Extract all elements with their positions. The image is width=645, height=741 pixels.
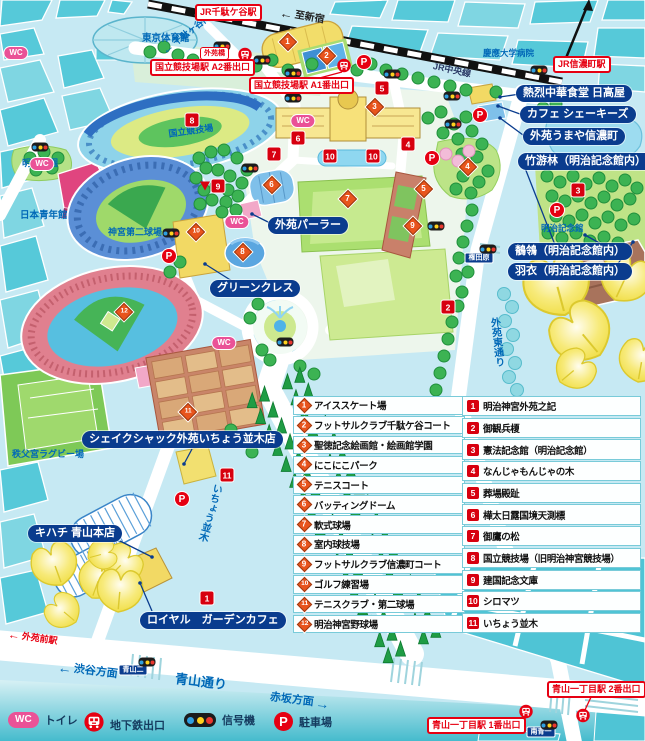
legend-label: 葬場殿趾 bbox=[483, 486, 519, 500]
legend-label: 室内球技場 bbox=[314, 537, 360, 551]
tennis-courts bbox=[146, 339, 265, 442]
legend-label: テニスクラブ・第二球場 bbox=[314, 597, 414, 611]
legend-label: 明治神宮外苑之記 bbox=[483, 399, 556, 413]
legend-label: 聖徳記念絵画館・絵画館学園 bbox=[314, 438, 432, 452]
facility-marker-icon: 10 bbox=[296, 576, 312, 592]
legend-label: 軟式球場 bbox=[314, 518, 350, 532]
facility-marker-icon: 5 bbox=[296, 477, 312, 493]
legend-row: 5テニスコート bbox=[293, 476, 465, 495]
legend-row: 4なんじゃもんじゃの木 bbox=[462, 461, 641, 481]
legend-label: 明治神宮野球場 bbox=[314, 617, 378, 631]
legend-label: いちょう並木 bbox=[483, 616, 538, 630]
legend-row: 2御観兵榎 bbox=[462, 418, 641, 438]
monument-marker-icon: 2 bbox=[467, 422, 479, 434]
monument-marker-icon: 5 bbox=[467, 487, 479, 499]
legend-facilities-list: 1アイススケート場2フットサルクラブ千駄ケ谷コート3聖徳記念絵画館・絵画館学園4… bbox=[293, 396, 465, 635]
monument-marker-icon: 1 bbox=[467, 400, 479, 412]
legend-monuments-list: 1明治神宮外苑之記2御観兵榎3憲法記念館（明治記念館）4なんじゃもんじゃの木5葬… bbox=[462, 396, 641, 635]
legend-row: 1アイススケート場 bbox=[293, 396, 465, 415]
facility-marker-icon: 3 bbox=[296, 437, 312, 453]
facility-marker-icon: 4 bbox=[296, 457, 312, 473]
monument-marker-icon: 8 bbox=[467, 552, 479, 564]
legend-label: アイススケート場 bbox=[314, 398, 386, 412]
monument-marker-icon: 6 bbox=[467, 509, 479, 521]
legend-label: なんじゃもんじゃの木 bbox=[483, 464, 574, 478]
legend-row: 6バッティングドーム bbox=[293, 495, 465, 514]
legend-label: 憲法記念館（明治記念館） bbox=[483, 443, 592, 457]
legend-row: 7軟式球場 bbox=[293, 515, 465, 534]
legend-row: 3聖徳記念絵画館・絵画館学園 bbox=[293, 436, 465, 455]
legend-row: 11テニスクラブ・第二球場 bbox=[293, 595, 465, 614]
legend-label: ゴルフ練習場 bbox=[314, 577, 369, 591]
facility-marker-icon: 12 bbox=[296, 616, 312, 632]
monument-marker-icon: 7 bbox=[467, 530, 479, 542]
facility-marker-icon: 11 bbox=[296, 596, 312, 612]
legend-label: テニスコート bbox=[314, 478, 369, 492]
legend-row: 3憲法記念館（明治記念館） bbox=[462, 439, 641, 459]
legend-row: 12明治神宮野球場 bbox=[293, 615, 465, 634]
legend-label: フットサルクラブ信濃町コート bbox=[314, 557, 441, 571]
legend-label: フットサルクラブ千駄ケ谷コート bbox=[314, 418, 451, 432]
facility-marker-icon: 6 bbox=[296, 497, 312, 513]
facility-marker-icon: 9 bbox=[296, 557, 312, 573]
legend-row: 2フットサルクラブ千駄ケ谷コート bbox=[293, 416, 465, 435]
legend-row: 10シロマツ bbox=[462, 591, 641, 611]
legend-label: 樺太日露国境天測標 bbox=[483, 508, 565, 522]
legend-row: 1明治神宮外苑之記 bbox=[462, 396, 641, 416]
facility-marker-icon: 1 bbox=[296, 397, 312, 413]
legend-row: 9フットサルクラブ信濃町コート bbox=[293, 555, 465, 574]
monument-marker-icon: 10 bbox=[467, 595, 479, 607]
legend-row: 4にこにこパーク bbox=[293, 456, 465, 475]
legend-label: 御鷹の松 bbox=[483, 529, 519, 543]
legend-label: 国立競技場（旧明治神宮競技場） bbox=[483, 551, 620, 565]
monument-marker-icon: 11 bbox=[467, 617, 479, 629]
legend-row: 10ゴルフ練習場 bbox=[293, 575, 465, 594]
legend-label: 建国記念文庫 bbox=[483, 573, 538, 587]
facility-marker-icon: 2 bbox=[296, 417, 312, 433]
legend-row: 5葬場殿趾 bbox=[462, 483, 641, 503]
legend-label: バッティングドーム bbox=[314, 498, 395, 512]
legend-label: にこにこパーク bbox=[314, 458, 377, 472]
legend-row: 8国立競技場（旧明治神宮競技場） bbox=[462, 548, 641, 568]
golf-range-building bbox=[173, 214, 230, 278]
facility-marker-icon: 7 bbox=[296, 517, 312, 533]
monument-marker-icon: 3 bbox=[467, 444, 479, 456]
legend-row: 6樺太日露国境天測標 bbox=[462, 504, 641, 524]
legend-label: シロマツ bbox=[483, 594, 519, 608]
monument-marker-icon: 4 bbox=[467, 465, 479, 477]
legend-row: 11いちょう並木 bbox=[462, 613, 641, 633]
facility-marker-icon: 8 bbox=[296, 537, 312, 553]
legend-row: 7御鷹の松 bbox=[462, 526, 641, 546]
gaien-area-map: JR千駄ケ谷駅国立競技場駅 A2番出口国立競技場駅 A1番出口JR信濃町駅青山一… bbox=[0, 0, 645, 741]
monument-marker-icon: 9 bbox=[467, 574, 479, 586]
legend-row: 8室内球技場 bbox=[293, 535, 465, 554]
legend-label: 御観兵榎 bbox=[483, 421, 519, 435]
legend-row: 9建国記念文庫 bbox=[462, 570, 641, 590]
